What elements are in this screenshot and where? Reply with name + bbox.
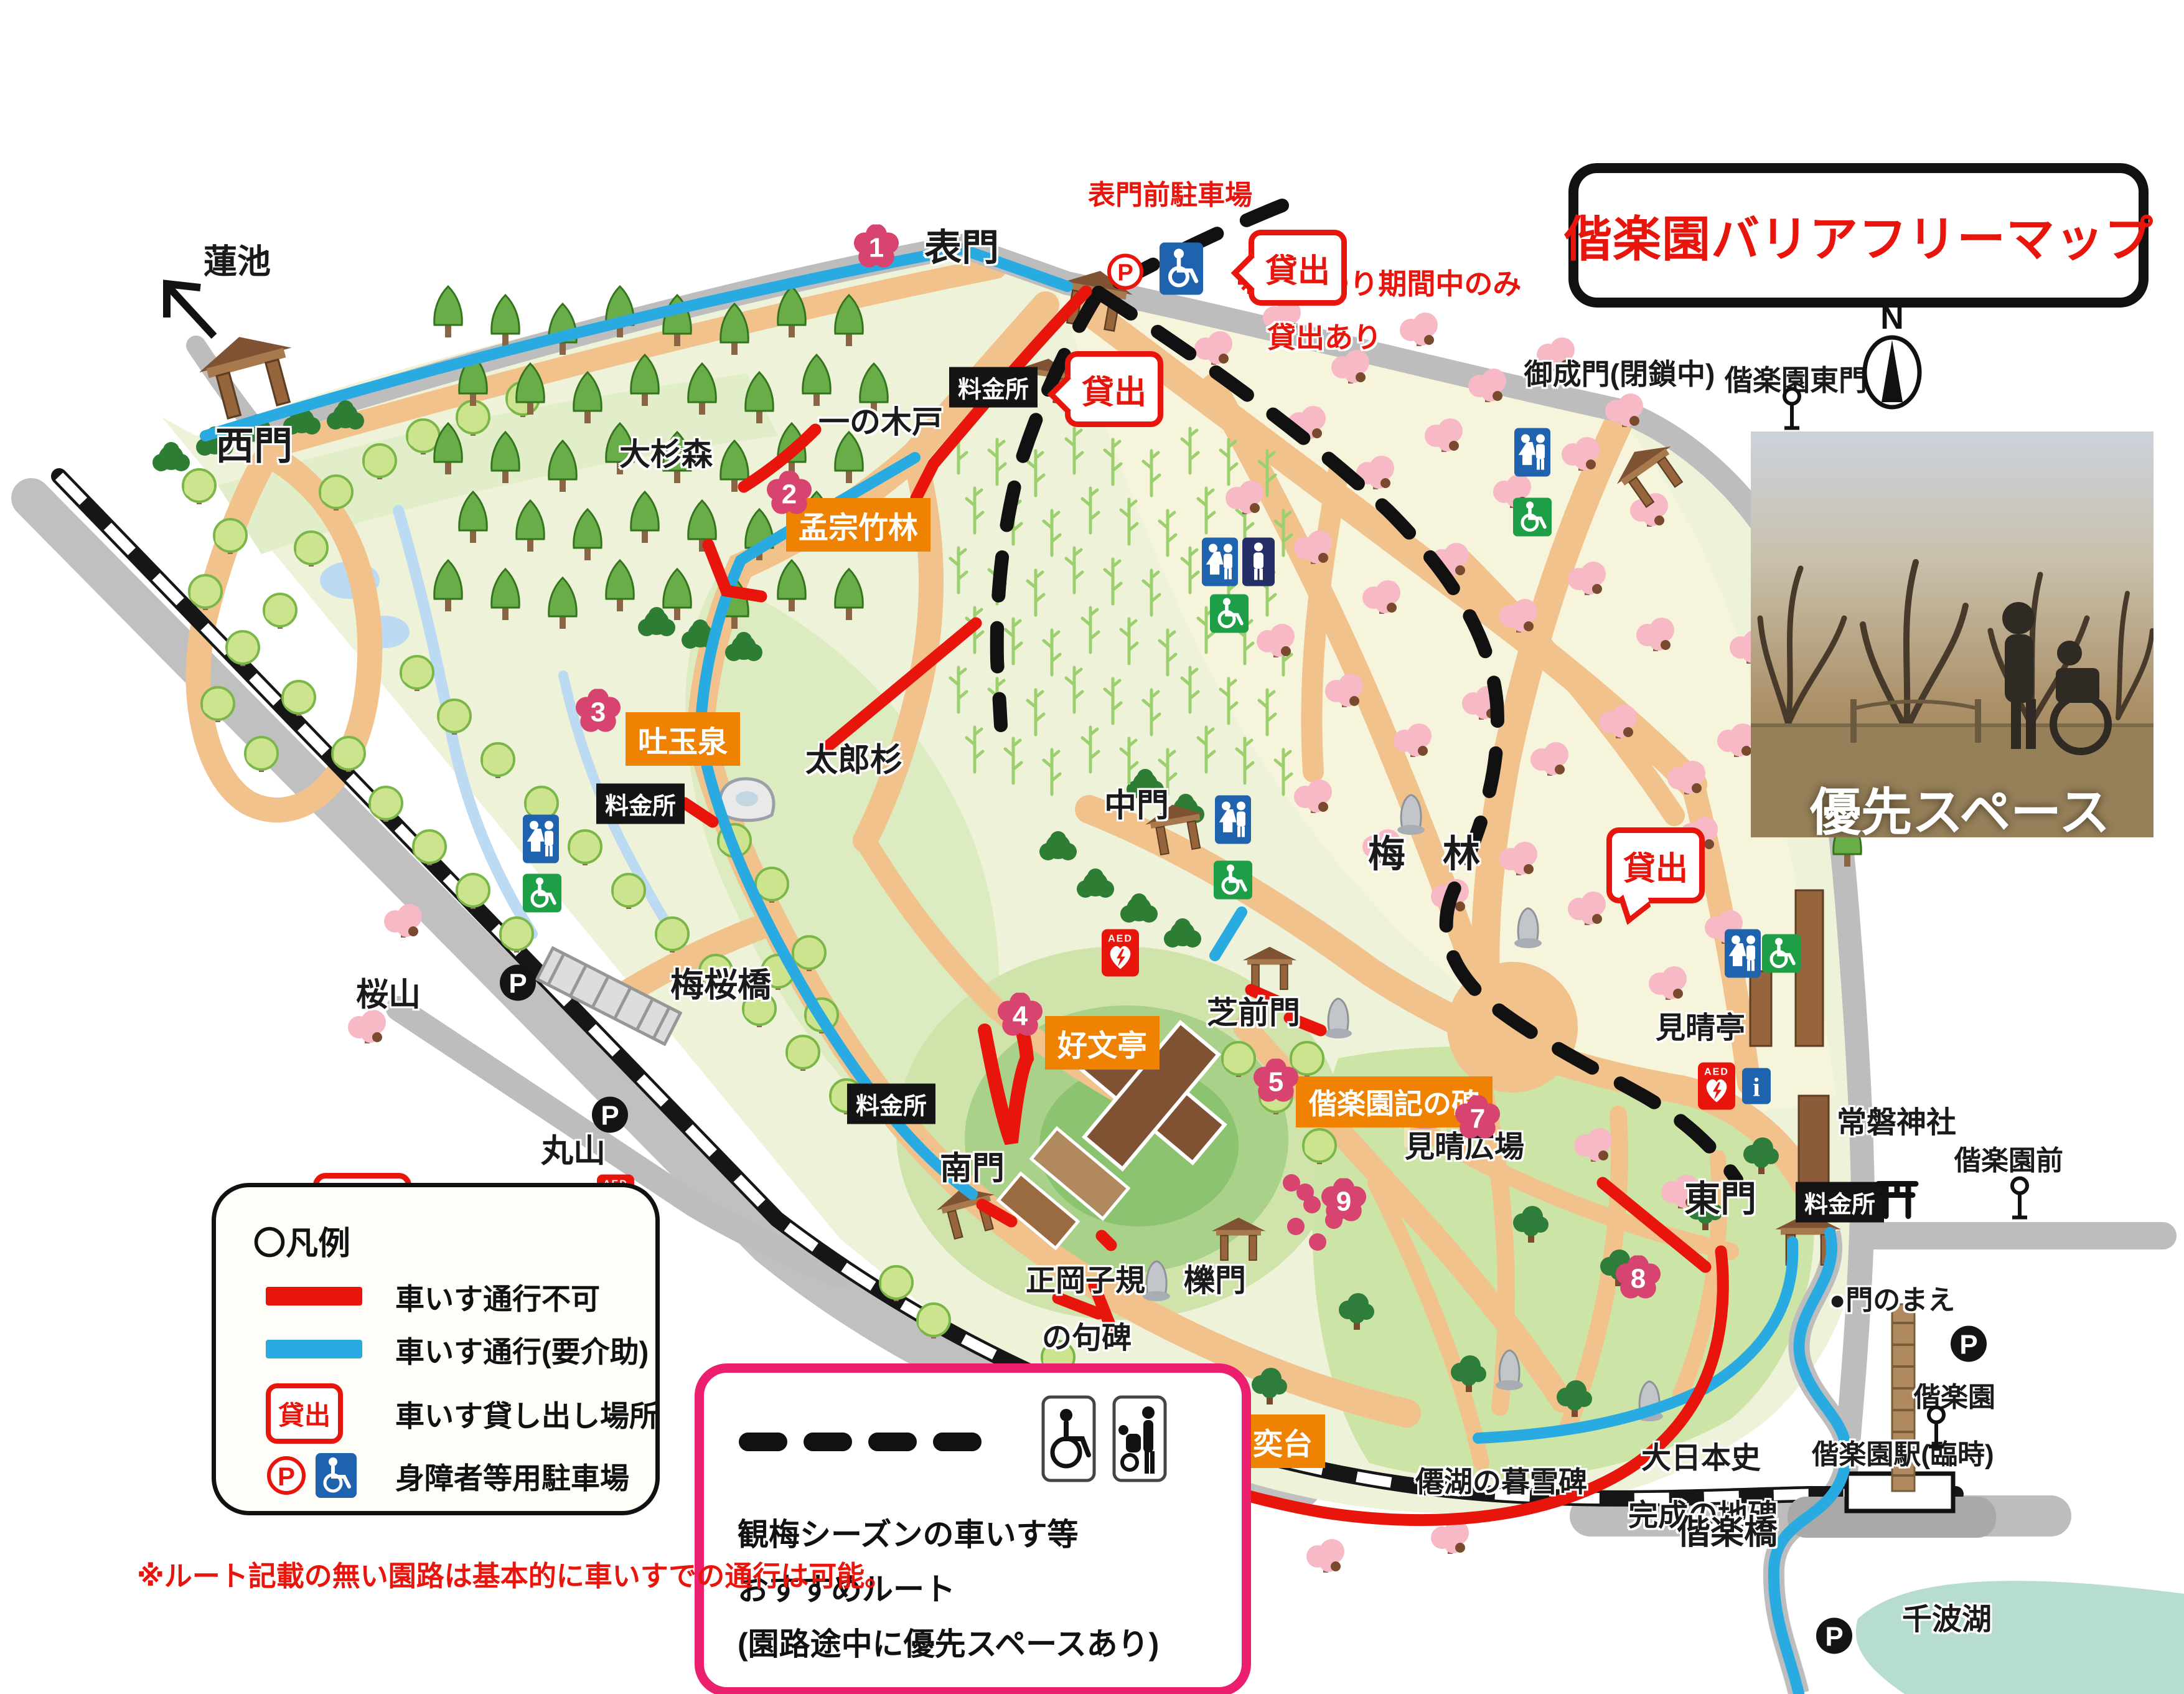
lend-badge: 貸出 — [266, 1383, 343, 1444]
legend-heading: 〇凡例 — [253, 1217, 350, 1264]
place-label: ●門のまえ — [1829, 1286, 1956, 1315]
info-icon: i — [1742, 1068, 1771, 1108]
place-label: 正岡子規 — [1026, 1266, 1145, 1297]
dashed-route-swatch — [739, 1433, 982, 1451]
place-label: 大杉森 — [619, 438, 713, 471]
numbered-marker-4: 4 — [998, 993, 1043, 1041]
place-label: 常磐神社 — [1837, 1108, 1956, 1139]
svg-text:3: 3 — [591, 697, 606, 728]
place-label: 偕楽園駅(臨時) — [1811, 1441, 1994, 1469]
fee-station-label: 料金所 — [847, 1084, 935, 1124]
torii-icon — [1875, 1177, 1919, 1225]
wheelchair-icon — [1513, 498, 1552, 540]
legend-label: 身障者等用駐車場 — [395, 1454, 629, 1497]
legend-label: 車いす貸し出し場所 — [395, 1392, 658, 1435]
svg-text:2: 2 — [782, 479, 797, 510]
svg-text:i: i — [1753, 1074, 1760, 1103]
note-free-passage: ※ルート記載の無い園路は基本的に車いすでの通行は可能。 — [137, 1553, 893, 1594]
stroller-icon — [1112, 1395, 1167, 1482]
place-label: 偕楽橋 — [1677, 1515, 1778, 1551]
red-note-label: 貸出あり — [1267, 322, 1382, 352]
kairakuen-barrier-free-map: 優先スペース 偕楽園バリアフリーマップ N 〇凡例 車いす通行不可 車いす通行(… — [0, 0, 2184, 1694]
svg-text:P: P — [509, 969, 527, 999]
svg-text:P: P — [1117, 260, 1133, 286]
place-label: 桜山 — [356, 979, 421, 1013]
legend-row-lending: 貸出 車いす貸し出し場所 — [266, 1379, 658, 1447]
numbered-marker-5: 5 — [1254, 1059, 1298, 1107]
lotus-pond-arrow — [167, 284, 214, 336]
toilet-icon — [1202, 538, 1238, 590]
svg-text:AED: AED — [1704, 1067, 1729, 1078]
place-label: 御成門(閉鎖中) — [1524, 359, 1715, 389]
place-label: 千波湖 — [1902, 1604, 1992, 1635]
parking-icon: P — [1950, 1325, 1987, 1366]
route-box-line1: 観梅シーズンの車いす等 — [738, 1510, 1079, 1555]
svg-text:1: 1 — [869, 233, 884, 263]
svg-text:P: P — [1825, 1622, 1843, 1652]
svg-text:7: 7 — [1470, 1104, 1485, 1134]
svg-text:P: P — [278, 1462, 295, 1491]
place-label: 表門 — [924, 228, 999, 268]
recommended-route-panel: 観梅シーズンの車いす等 おすすめルート (園路途中に優先スペースあり) — [695, 1363, 1251, 1694]
place-label: 梅 林 — [1368, 835, 1480, 874]
wheelchair-icon — [1210, 595, 1249, 636]
place-label: 大日本史 — [1641, 1443, 1761, 1474]
place-label: 梅桜橋 — [670, 968, 771, 1004]
parking-icon: P — [499, 964, 537, 1005]
place-label: 中門 — [1104, 789, 1169, 824]
svg-text:8: 8 — [1631, 1264, 1646, 1294]
parking-red-icon: P — [1107, 253, 1144, 294]
place-label: 櫟門 — [1184, 1264, 1246, 1297]
place-label: 丸山 — [541, 1135, 606, 1169]
priority-space-photo: 優先スペース — [1751, 431, 2154, 837]
numbered-marker-9: 9 — [1321, 1179, 1366, 1226]
place-label: 東門 — [1684, 1181, 1756, 1219]
wheelchair-outline-icon — [1041, 1395, 1096, 1482]
place-label: 太郎杉 — [805, 744, 902, 778]
spot-label-orange: 吐玉泉 — [626, 712, 740, 766]
red-line-swatch — [266, 1287, 362, 1306]
map-title-box: 偕楽園バリアフリーマップ — [1568, 163, 2149, 308]
lend-bubble: 貸出 — [1606, 827, 1705, 903]
numbered-marker-8: 8 — [1616, 1256, 1661, 1304]
place-label: 南門 — [940, 1152, 1005, 1187]
legend-panel: 〇凡例 車いす通行不可 車いす通行(要介助) 貸出 車いす貸し出し場所 P 身障… — [212, 1183, 660, 1515]
place-label: 西門 — [215, 426, 293, 466]
red-note-label: 表門前駐車場 — [1088, 181, 1252, 210]
place-label: 偕楽園前 — [1954, 1147, 2063, 1175]
numbered-marker-7: 7 — [1455, 1096, 1500, 1144]
place-label: 僊湖の暮雪碑 — [1415, 1467, 1587, 1497]
route-box-line3: (園路途中に優先スペースあり) — [738, 1619, 1159, 1664]
svg-text:P: P — [1959, 1330, 1977, 1360]
fee-station-label: 料金所 — [1796, 1182, 1884, 1223]
legend-row-parking: P 身障者等用駐車場 — [266, 1447, 629, 1503]
fee-station-label: 料金所 — [949, 367, 1038, 408]
bus-stop-icon — [2007, 1177, 2032, 1227]
parking-red-icon: P — [266, 1454, 309, 1497]
legend-row-assisted: 車いす通行(要介助) — [266, 1327, 649, 1371]
svg-text:9: 9 — [1336, 1187, 1351, 1217]
lend-bubble: 貸出 — [1249, 230, 1347, 306]
svg-text:P: P — [601, 1101, 619, 1131]
aed-icon: AED — [1102, 929, 1139, 980]
place-label: 芝前門 — [1207, 997, 1300, 1030]
wheelchair-icon — [1214, 861, 1252, 903]
parking-icon: P — [1816, 1617, 1853, 1658]
legend-label: 車いす通行不可 — [395, 1275, 600, 1318]
blue-line-swatch — [266, 1340, 362, 1358]
map-title: 偕楽園バリアフリーマップ — [1563, 200, 2154, 270]
wheelchair-icon — [523, 874, 561, 916]
togyokusen-spring-stone — [720, 779, 774, 821]
toilet-icon — [1514, 428, 1550, 480]
bus-stop-icon — [1779, 387, 1804, 438]
place-label: 見晴亭 — [1656, 1013, 1745, 1044]
wheelchair-blue-icon — [314, 1452, 358, 1499]
place-label: の句碑 — [1042, 1323, 1132, 1354]
compass-north: N — [1858, 299, 1926, 417]
nursing-icon — [1242, 538, 1275, 590]
parking-icon: P — [591, 1096, 629, 1137]
legend-row-no-access: 車いす通行不可 — [266, 1274, 600, 1318]
svg-text:AED: AED — [1108, 934, 1133, 944]
spot-label-orange: 好文亭 — [1045, 1016, 1160, 1070]
photo-caption: 優先スペース — [1810, 771, 2110, 837]
wheelchair-blue-icon — [1160, 243, 1203, 298]
numbered-marker-3: 3 — [576, 689, 621, 737]
numbered-marker-1: 1 — [854, 225, 899, 273]
toilet-icon — [1725, 929, 1761, 981]
aed-icon: AED — [1698, 1063, 1735, 1113]
lake-senba — [1856, 1581, 2184, 1694]
toilet-icon — [523, 815, 559, 867]
place-label: 蓮池 — [204, 245, 271, 280]
svg-text:4: 4 — [1013, 1001, 1028, 1032]
svg-text:5: 5 — [1268, 1067, 1283, 1098]
place-label: 一の木戸 — [818, 406, 943, 439]
lend-bubble: 貸出 — [1065, 351, 1163, 427]
wheelchair-icon — [1762, 934, 1801, 976]
bus-stop-icon — [1924, 1406, 1949, 1456]
legend-label: 車いす通行(要介助) — [395, 1328, 649, 1371]
toilet-icon — [1215, 796, 1251, 847]
fee-station-label: 料金所 — [596, 784, 685, 824]
numbered-marker-2: 2 — [767, 471, 812, 519]
